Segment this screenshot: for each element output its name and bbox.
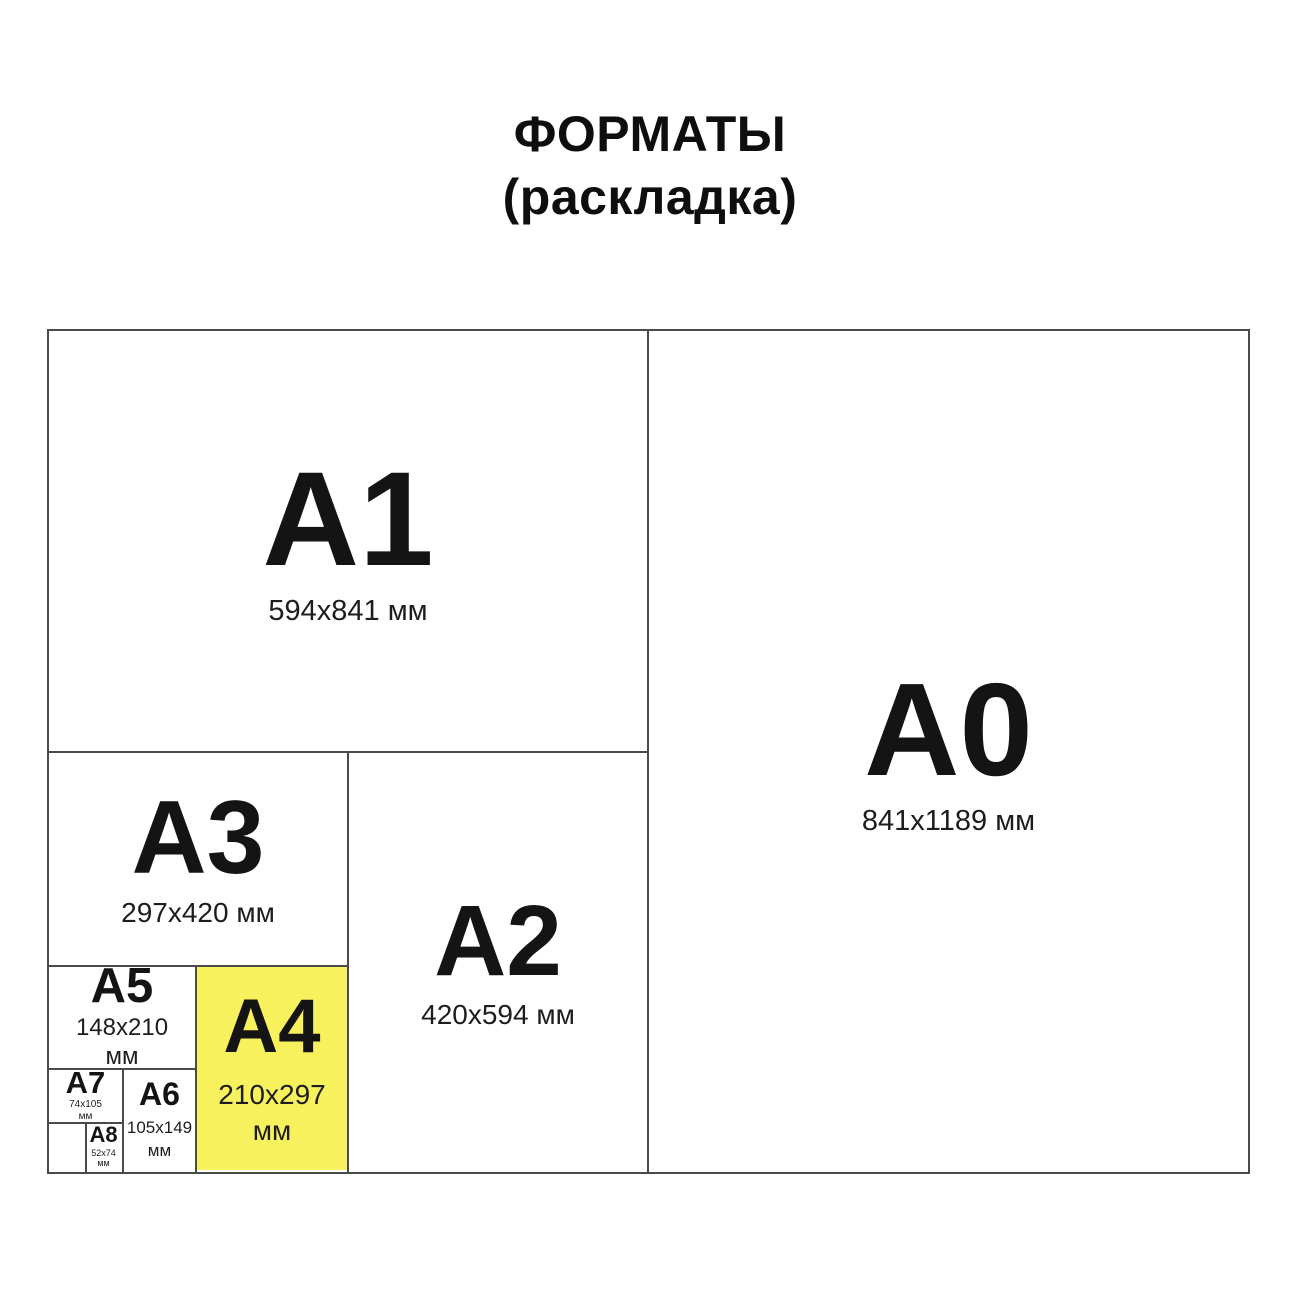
format-a2-dimensions: 420x594 мм	[421, 998, 575, 1032]
page-title-line-2: (раскладка)	[0, 166, 1300, 229]
format-a6-label: A6	[139, 1078, 180, 1110]
format-a4-card-highlighted: A4 210x297 мм	[197, 967, 347, 1170]
format-a0-label: A0	[864, 664, 1033, 796]
formats-layout-sheet: A1 594x841 мм A0 841x1189 мм A3 297x420 …	[47, 329, 1250, 1174]
format-a2-card: A2 420x594 мм	[349, 751, 647, 1172]
format-a1-card: A1 594x841 мм	[49, 331, 647, 751]
format-a0-card: A0 841x1189 мм	[649, 331, 1248, 1172]
format-a5-label: A5	[91, 962, 154, 1011]
format-a1-dimensions: 594x841 мм	[268, 594, 427, 629]
format-a6-card: A6 105x149 мм	[124, 1068, 195, 1172]
format-a8-label: A8	[89, 1125, 117, 1146]
format-a8-card: A8 52x74 мм	[85, 1122, 122, 1172]
format-a8-dimensions: 52x74 мм	[91, 1148, 116, 1170]
format-a4-dimensions: 210x297 мм	[218, 1077, 325, 1149]
format-a0-dimensions: 841x1189 мм	[862, 804, 1035, 839]
format-a7-card: A7 74x105 мм	[49, 1068, 122, 1122]
format-a1-label: A1	[262, 453, 433, 587]
format-a3-label: A3	[132, 786, 265, 890]
format-a7-label: A7	[66, 1068, 106, 1097]
format-a2-label: A2	[434, 891, 562, 991]
format-a4-label: A4	[223, 989, 320, 1065]
page-title-line-1: ФОРМАТЫ	[0, 103, 1300, 166]
format-a3-dimensions: 297x420 мм	[121, 896, 275, 930]
format-a3-card: A3 297x420 мм	[49, 751, 347, 965]
page-title: ФОРМАТЫ (раскладка)	[0, 103, 1300, 229]
format-a5-card: A5 148x210 мм	[49, 965, 195, 1068]
format-a7-dimensions: 74x105 мм	[69, 1099, 102, 1122]
format-a5-dimensions: 148x210 мм	[76, 1014, 168, 1071]
format-a6-dimensions: 105x149 мм	[127, 1117, 192, 1161]
